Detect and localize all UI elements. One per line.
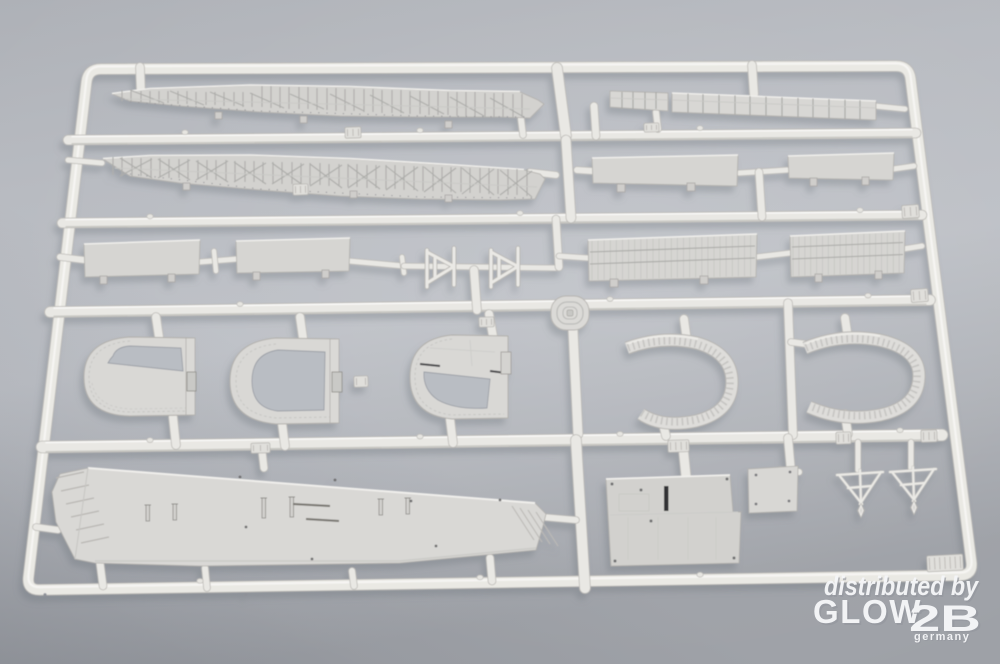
svg-text:GLOW: GLOW	[813, 593, 922, 630]
svg-text:germany: germany	[914, 631, 970, 643]
